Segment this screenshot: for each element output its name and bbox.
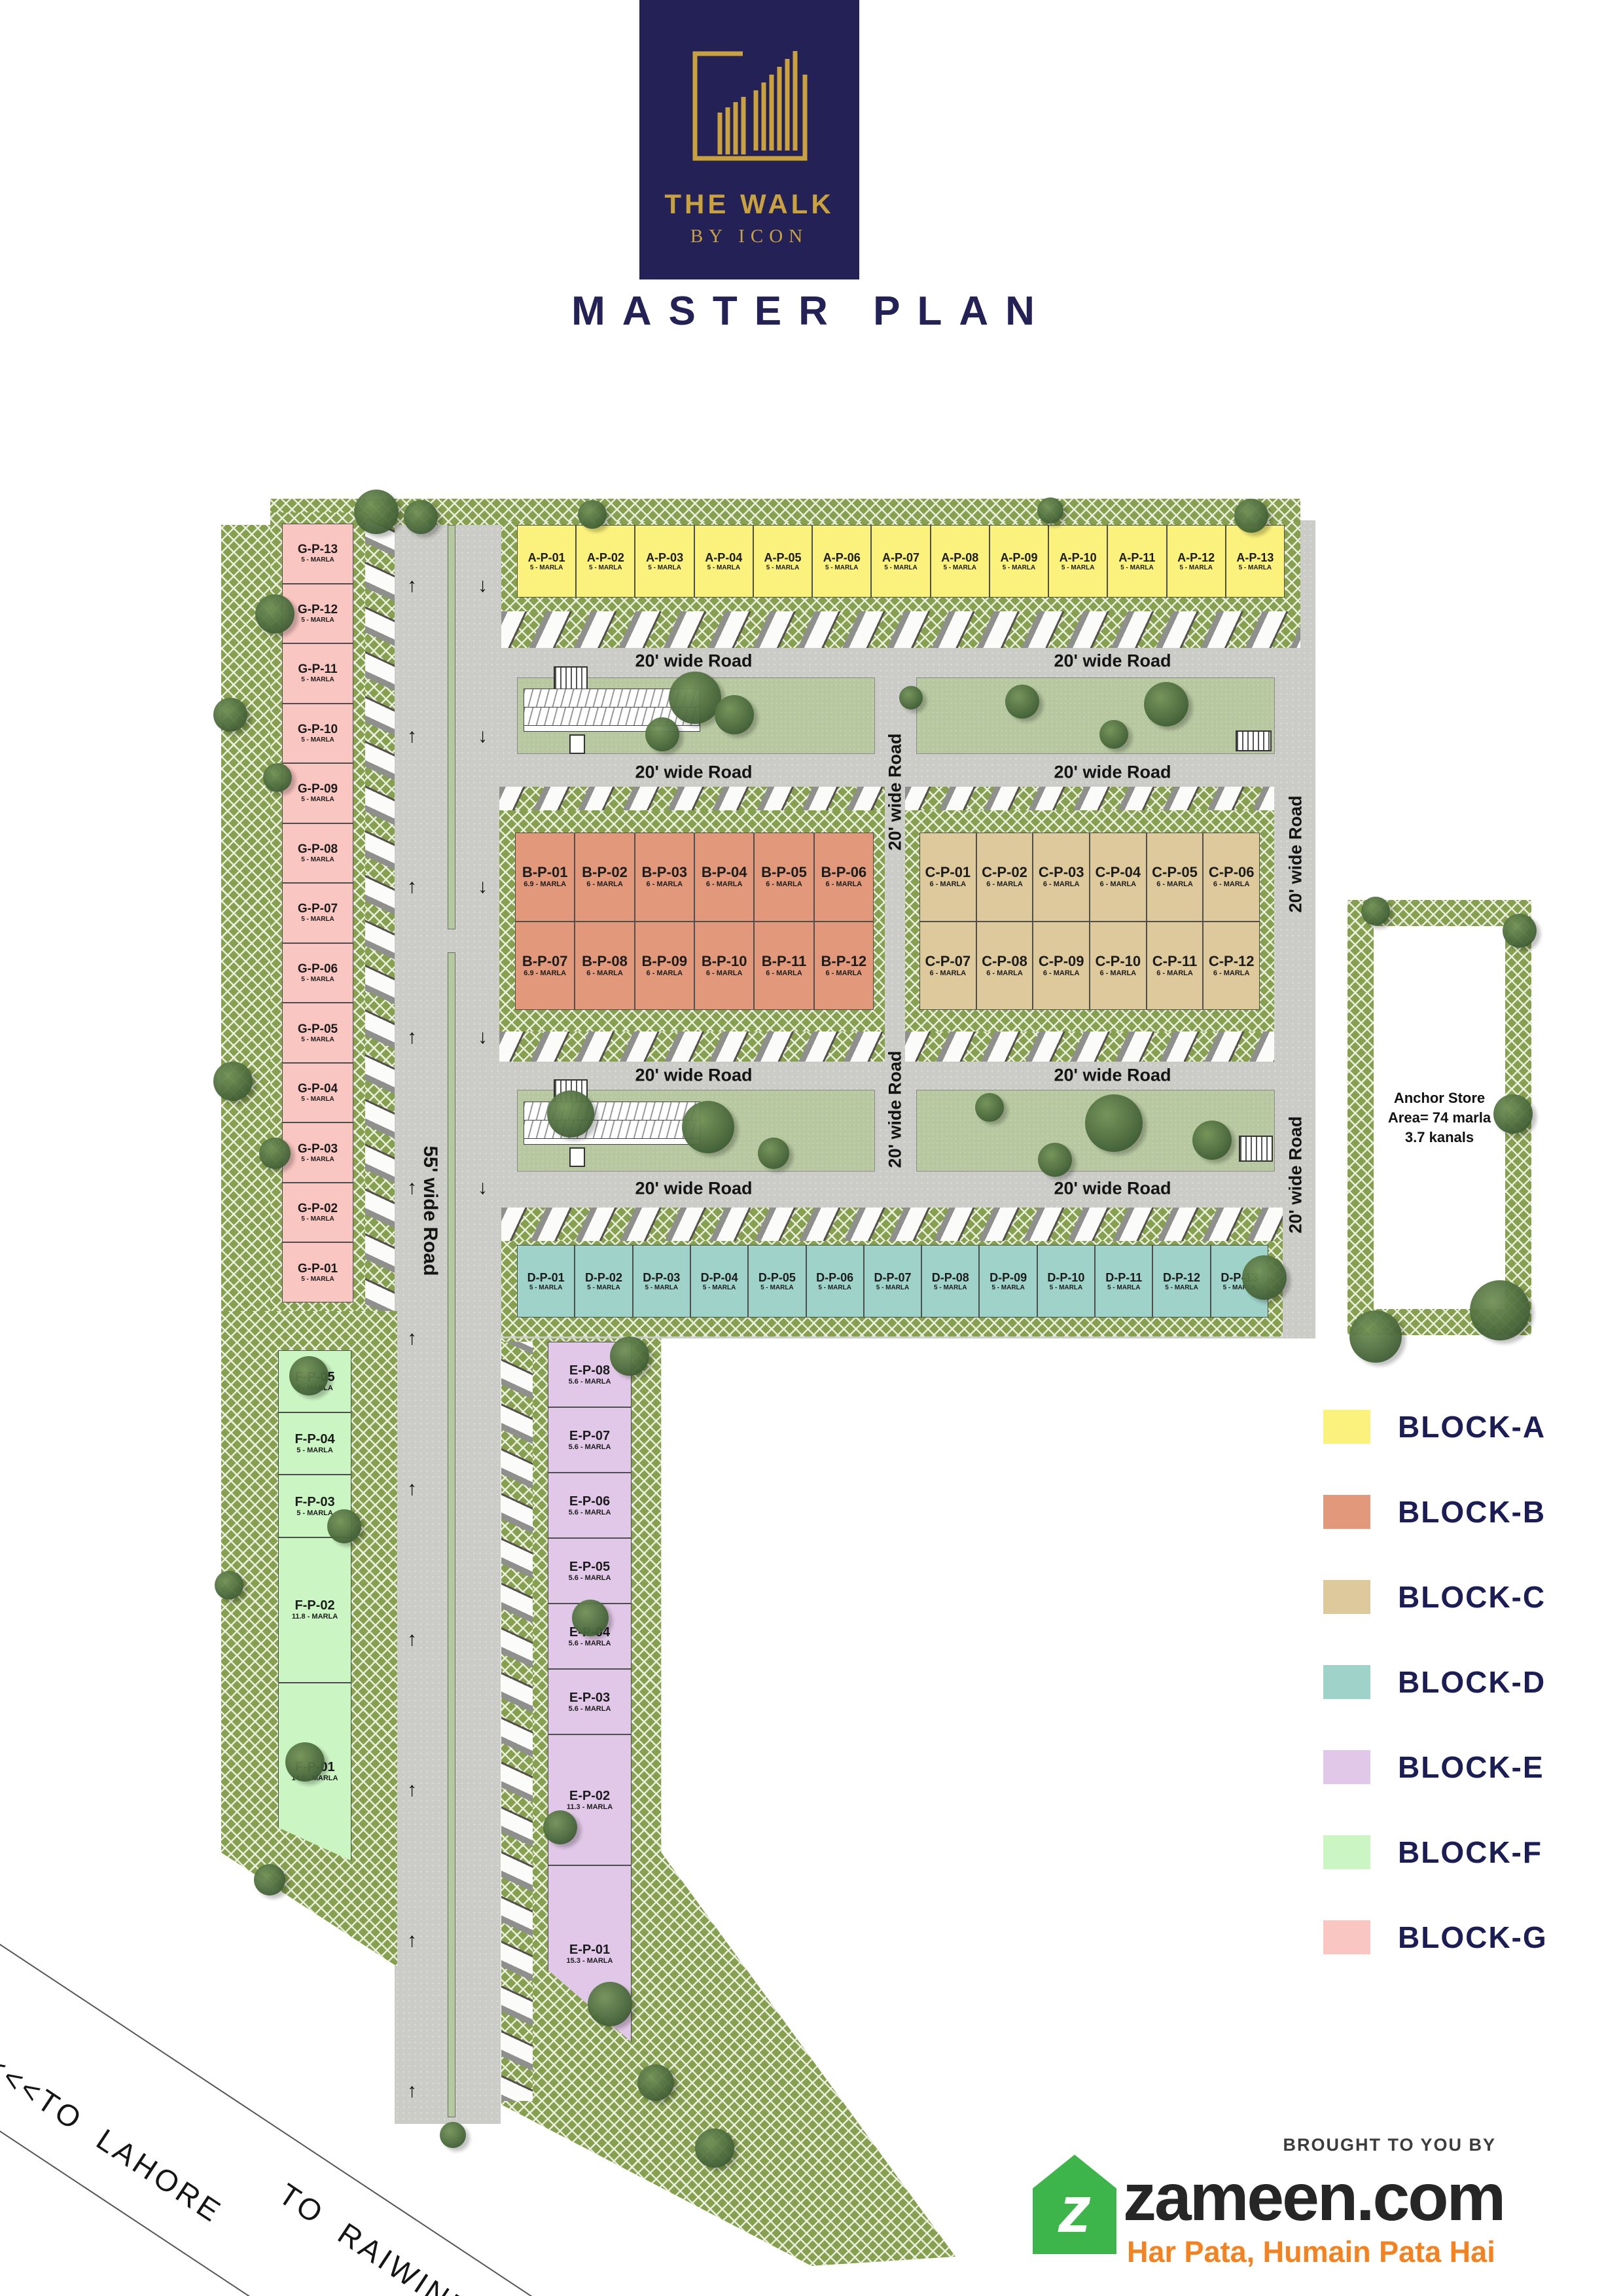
zameen-brand: zameen.com <box>1123 2164 1504 2231</box>
zameen-house-icon: z <box>1033 2155 1116 2254</box>
plot-C-P-01: C-P-016 - MARLA <box>919 833 976 922</box>
plot-D-P-09: D-P-095 - MARLA <box>979 1245 1037 1318</box>
parking-strip <box>499 1031 885 1062</box>
plot-D-P-01: D-P-015 - MARLA <box>517 1245 575 1318</box>
plot-A-P-11: A-P-115 - MARLA <box>1107 525 1166 598</box>
plot-E-P-03: E-P-035.6 - MARLA <box>548 1669 632 1734</box>
road-label: 20' wide Road <box>635 1066 753 1086</box>
plot-C-P-02: C-P-026 - MARLA <box>976 833 1033 922</box>
road-label: 20' wide Road <box>635 651 753 672</box>
plot-C-P-11: C-P-116 - MARLA <box>1147 922 1204 1011</box>
road-label: 20' wide Road <box>1054 762 1171 783</box>
plot-F-P-02: F-P-0211.8 - MARLA <box>278 1537 351 1683</box>
plot-G-P-13: G-P-135 - MARLA <box>282 524 353 584</box>
legend-item-block-d: BLOCK-D <box>1323 1665 1548 1699</box>
block-e-plots: E-P-085.6 - MARLAE-P-075.6 - MARLAE-P-06… <box>548 1342 632 2042</box>
plot-E-P-04: E-P-045.6 - MARLA <box>548 1604 632 1669</box>
road-label-vertical: 20' wide Road <box>885 1051 906 1168</box>
plot-D-P-04: D-P-045 - MARLA <box>690 1245 748 1318</box>
block-d-plots: D-P-015 - MARLAD-P-025 - MARLAD-P-035 - … <box>517 1245 1268 1318</box>
plot-F-P-03: F-P-035 - MARLA <box>278 1475 351 1537</box>
plot-G-P-04: G-P-045 - MARLA <box>282 1063 353 1123</box>
anchor-store: Anchor Store Area= 74 marla 3.7 kanals <box>1374 926 1505 1309</box>
plot-A-P-13: A-P-135 - MARLA <box>1226 525 1285 598</box>
park <box>916 1090 1275 1172</box>
legend-label: BLOCK-B <box>1398 1494 1546 1530</box>
plot-C-P-10: C-P-106 - MARLA <box>1090 922 1147 1011</box>
road-label-vertical: 20' wide Road <box>885 734 906 851</box>
plot-D-P-08: D-P-085 - MARLA <box>921 1245 979 1318</box>
plot-A-P-07: A-P-075 - MARLA <box>871 525 930 598</box>
legend-label: BLOCK-A <box>1398 1409 1546 1444</box>
road-label: 20' wide Road <box>1054 1179 1171 1199</box>
plot-C-P-07: C-P-076 - MARLA <box>919 922 976 1011</box>
block-f-plots: F-P-055 - MARLAF-P-045 - MARLAF-P-035 - … <box>278 1350 351 1861</box>
plot-A-P-09: A-P-095 - MARLA <box>990 525 1048 598</box>
block-b-plots: B-P-016.9 - MARLAB-P-026 - MARLAB-P-036 … <box>515 833 874 1010</box>
legend-item-block-b: BLOCK-B <box>1323 1495 1548 1529</box>
legend: BLOCK-ABLOCK-BBLOCK-CBLOCK-DBLOCK-EBLOCK… <box>1323 1410 1548 1954</box>
plot-G-P-03: G-P-035 - MARLA <box>282 1122 353 1183</box>
legend-item-block-e: BLOCK-E <box>1323 1750 1548 1784</box>
plot-B-P-08: B-P-086 - MARLA <box>575 922 634 1011</box>
plot-D-P-07: D-P-075 - MARLA <box>864 1245 921 1318</box>
green-belt-left <box>221 525 270 1311</box>
tree-icon <box>440 2122 466 2148</box>
plot-E-P-02: E-P-0211.3 - MARLA <box>548 1734 632 1865</box>
legend-label: BLOCK-E <box>1398 1749 1544 1785</box>
plot-C-P-12: C-P-126 - MARLA <box>1203 922 1260 1011</box>
plot-D-P-13: D-P-135 - MARLA <box>1211 1245 1268 1318</box>
plot-A-P-10: A-P-105 - MARLA <box>1048 525 1107 598</box>
legend-item-block-c: BLOCK-C <box>1323 1580 1548 1614</box>
legend-swatch <box>1323 1835 1370 1869</box>
plot-E-P-08: E-P-085.6 - MARLA <box>548 1342 632 1407</box>
road-median <box>448 952 455 2117</box>
direction-lahore: <<<<<<<TO LAHORE <box>0 2001 229 2230</box>
legend-item-block-f: BLOCK-F <box>1323 1835 1548 1869</box>
plot-B-P-01: B-P-016.9 - MARLA <box>515 833 575 922</box>
plot-E-P-07: E-P-075.6 - MARLA <box>548 1407 632 1473</box>
plot-B-P-11: B-P-116 - MARLA <box>754 922 813 1011</box>
block-g-plots: G-P-135 - MARLAG-P-125 - MARLAG-P-115 - … <box>282 524 353 1302</box>
plot-G-P-08: G-P-085 - MARLA <box>282 823 353 884</box>
plot-A-P-08: A-P-085 - MARLA <box>931 525 990 598</box>
plot-G-P-06: G-P-065 - MARLA <box>282 943 353 1003</box>
plot-C-P-04: C-P-046 - MARLA <box>1090 833 1147 922</box>
plot-B-P-06: B-P-066 - MARLA <box>814 833 874 922</box>
legend-item-block-a: BLOCK-A <box>1323 1410 1548 1444</box>
stairs-icon <box>1236 730 1272 751</box>
plot-A-P-06: A-P-065 - MARLA <box>812 525 871 598</box>
parking-strip-east <box>501 1342 533 2101</box>
plot-D-P-03: D-P-035 - MARLA <box>633 1245 690 1318</box>
legend-swatch <box>1323 1410 1370 1444</box>
plot-C-P-09: C-P-096 - MARLA <box>1033 922 1090 1011</box>
plot-G-P-02: G-P-025 - MARLA <box>282 1183 353 1243</box>
block-c-plots: C-P-016 - MARLAC-P-026 - MARLAC-P-036 - … <box>919 833 1260 1010</box>
road-median <box>448 525 455 929</box>
plot-G-P-11: G-P-115 - MARLA <box>282 643 353 704</box>
plot-A-P-05: A-P-055 - MARLA <box>753 525 812 598</box>
page-title: MASTER PLAN <box>0 288 1623 334</box>
park <box>916 677 1275 754</box>
plot-G-P-12: G-P-125 - MARLA <box>282 584 353 644</box>
legend-swatch <box>1323 1580 1370 1614</box>
plot-G-P-07: G-P-075 - MARLA <box>282 883 353 943</box>
road-label-vertical: 20' wide Road <box>1286 796 1306 913</box>
parking-strip <box>501 1208 1283 1244</box>
legend-swatch <box>1323 1495 1370 1529</box>
block-a-plots: A-P-015 - MARLAA-P-025 - MARLAA-P-035 - … <box>517 525 1285 598</box>
plot-D-P-12: D-P-125 - MARLA <box>1152 1245 1210 1318</box>
anchor-store-kanals: 3.7 kanals <box>1405 1128 1474 1147</box>
master-plan-canvas: THE WALK BY ICON MASTER PLAN TO RAIWIND … <box>0 0 1623 2296</box>
plot-G-P-05: G-P-055 - MARLA <box>282 1003 353 1063</box>
road-label: 20' wide Road <box>635 762 753 783</box>
legend-label: BLOCK-F <box>1398 1835 1543 1870</box>
the-walk-logo: THE WALK BY ICON <box>639 0 859 279</box>
plot-D-P-02: D-P-025 - MARLA <box>575 1245 632 1318</box>
main-road-label: 55' wide Road <box>419 1146 441 1276</box>
legend-swatch <box>1323 1750 1370 1784</box>
plot-G-P-10: G-P-105 - MARLA <box>282 704 353 764</box>
plot-C-P-03: C-P-036 - MARLA <box>1033 833 1090 922</box>
parking-strip <box>905 1031 1274 1062</box>
plot-B-P-05: B-P-056 - MARLA <box>754 833 813 922</box>
plot-A-P-03: A-P-035 - MARLA <box>635 525 694 598</box>
plot-B-P-07: B-P-076.9 - MARLA <box>515 922 575 1011</box>
zameen-tagline: Har Pata, Humain Pata Hai <box>1127 2237 1495 2267</box>
legend-label: BLOCK-D <box>1398 1664 1546 1700</box>
plot-B-P-03: B-P-036 - MARLA <box>635 833 694 922</box>
plot-C-P-05: C-P-056 - MARLA <box>1147 833 1204 922</box>
stairs-icon <box>1239 1136 1273 1162</box>
plot-D-P-06: D-P-065 - MARLA <box>806 1245 864 1318</box>
plot-E-P-05: E-P-055.6 - MARLA <box>548 1538 632 1604</box>
parking-strip <box>501 611 1300 648</box>
plot-D-P-10: D-P-105 - MARLA <box>1037 1245 1095 1318</box>
logo-title: THE WALK <box>639 188 859 220</box>
logo-subtitle: BY ICON <box>639 226 859 247</box>
plot-D-P-11: D-P-115 - MARLA <box>1095 1245 1152 1318</box>
plot-B-P-09: B-P-096 - MARLA <box>635 922 694 1011</box>
legend-label: BLOCK-C <box>1398 1579 1546 1615</box>
anchor-store-title: Anchor Store <box>1394 1088 1485 1108</box>
plot-G-P-01: G-P-015 - MARLA <box>282 1242 353 1302</box>
plot-E-P-06: E-P-065.6 - MARLA <box>548 1473 632 1538</box>
plot-C-P-08: C-P-086 - MARLA <box>976 922 1033 1011</box>
road-label: 20' wide Road <box>1054 1066 1171 1086</box>
plot-F-P-05: F-P-055 - MARLA <box>278 1350 351 1412</box>
legend-swatch <box>1323 1665 1370 1699</box>
plot-A-P-12: A-P-125 - MARLA <box>1167 525 1226 598</box>
legend-label: BLOCK-G <box>1398 1920 1548 1955</box>
plot-B-P-12: B-P-126 - MARLA <box>814 922 874 1011</box>
legend-swatch <box>1323 1920 1370 1954</box>
legend-item-block-g: BLOCK-G <box>1323 1920 1548 1954</box>
road-label: 20' wide Road <box>1054 651 1171 672</box>
road-label-vertical: 20' wide Road <box>1286 1117 1306 1234</box>
plot-A-P-04: A-P-045 - MARLA <box>694 525 753 598</box>
plot-G-P-09: G-P-095 - MARLA <box>282 763 353 823</box>
plot-F-P-04: F-P-045 - MARLA <box>278 1412 351 1475</box>
anchor-store-area: Area= 74 marla <box>1388 1108 1491 1128</box>
plot-B-P-10: B-P-106 - MARLA <box>694 922 754 1011</box>
brought-to-you-by: BROUGHT TO YOU BY <box>1283 2135 1496 2155</box>
plot-D-P-05: D-P-055 - MARLA <box>748 1245 806 1318</box>
plot-A-P-02: A-P-025 - MARLA <box>576 525 635 598</box>
plot-B-P-04: B-P-046 - MARLA <box>694 833 754 922</box>
buildings-icon <box>681 27 818 171</box>
plot-C-P-06: C-P-066 - MARLA <box>1203 833 1260 922</box>
direction-raiwind: TO RAIWIND >>>>>>>> <box>272 2176 628 2296</box>
plot-A-P-01: A-P-015 - MARLA <box>517 525 576 598</box>
plot-B-P-02: B-P-026 - MARLA <box>575 833 634 922</box>
road-label: 20' wide Road <box>635 1179 753 1199</box>
